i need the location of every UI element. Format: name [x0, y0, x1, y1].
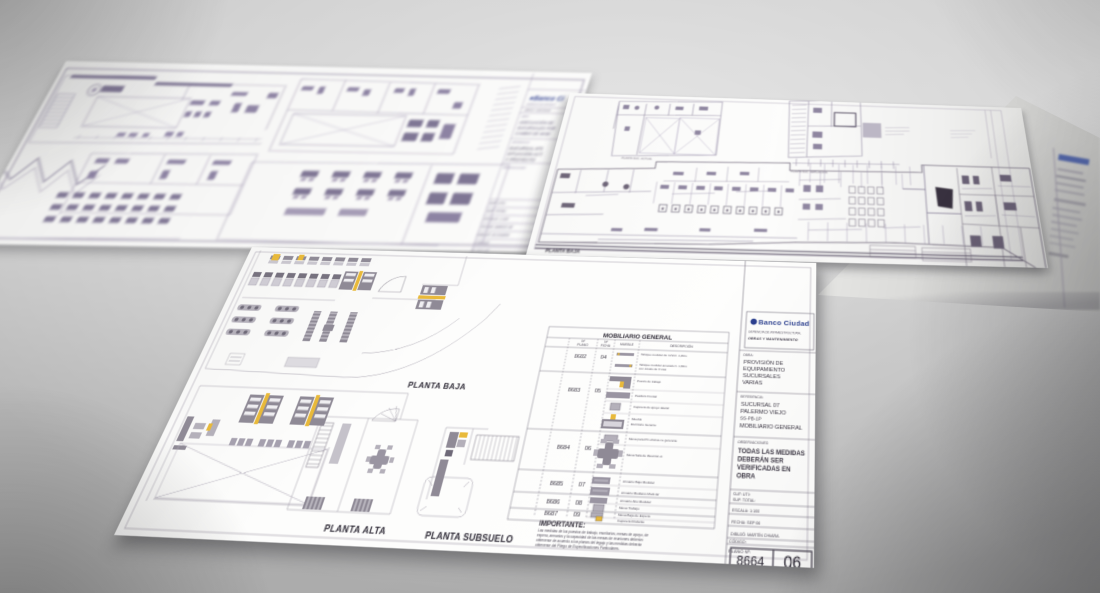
- svg-text:DIBUJÓ: M.CHIARA: DIBUJÓ: M.CHIARA: [476, 232, 511, 238]
- svg-text:SS-PB-1P: SS-PB-1P: [740, 416, 762, 422]
- svg-text:Tabique modular de m/alt h. 1,: Tabique modular de m/alt h. 1,80m: [641, 352, 688, 358]
- svg-text:SUCURSALES POR: SUCURSALES POR: [517, 125, 557, 130]
- svg-text:●Banco Ci: ●Banco Ci: [528, 94, 566, 103]
- svg-text:06: 06: [783, 554, 801, 568]
- svg-text:OBRA:: OBRA:: [743, 353, 754, 358]
- svg-text:8686: 8686: [546, 498, 561, 506]
- svg-text:8664: 8664: [736, 553, 764, 568]
- svg-text:Mesa Trabajo: Mesa Trabajo: [619, 505, 641, 512]
- svg-text:OBRA:: OBRA:: [521, 115, 531, 119]
- svg-text:04: 04: [600, 354, 607, 360]
- svg-text:PLANTA BAJA: PLANTA BAJA: [406, 382, 466, 392]
- svg-text:Armario Bajo Modular: Armario Bajo Modular: [622, 478, 655, 485]
- svg-text:GERENCIA DE INFRAESTRUCTURA,: GERENCIA DE INFRAESTRUCTURA,: [748, 329, 801, 335]
- svg-text:SUP. UTIL:: SUP. UTIL:: [488, 201, 507, 205]
- svg-text:8687: 8687: [544, 509, 559, 517]
- svg-text:OBSERVACIONES:: OBSERVACIONES:: [737, 439, 769, 445]
- svg-text:VARIAS: VARIAS: [742, 379, 762, 386]
- svg-text:PLANTA SUC. ACTUAL: PLANTA SUC. ACTUAL: [621, 156, 653, 161]
- svg-text:Mueble: Mueble: [631, 416, 643, 421]
- svg-text:DESCRIPCIÓN: DESCRIPCIÓN: [670, 343, 693, 349]
- svg-text:ESCALA: 1:100: ESCALA: 1:100: [483, 217, 509, 221]
- svg-text:PLANTA BAJA: PLANTA BAJA: [545, 248, 582, 254]
- svg-text:SUCURSAL Nº5: SUCURSAL Nº5: [508, 146, 544, 152]
- svg-text:PLANO Nº:: PLANO Nº:: [471, 249, 490, 252]
- svg-text:09: 09: [573, 511, 581, 518]
- svg-text:8683: 8683: [567, 387, 581, 393]
- svg-text:GERENCIA DE INFRAEST: GERENCIA DE INFRAEST: [526, 102, 557, 106]
- svg-text:Armario Mediano Modular: Armario Mediano Modular: [621, 490, 660, 497]
- svg-text:MOBILIARIO GENERAL: MOBILIARIO GENERAL: [739, 422, 803, 431]
- svg-text:MUEBLE: MUEBLE: [620, 342, 634, 347]
- svg-text:OBRA: OBRA: [736, 472, 756, 481]
- svg-text:05: 05: [594, 388, 602, 394]
- svg-text:OBRAS Y MANTENIM: OBRAS Y MANTENIM: [524, 108, 552, 112]
- svg-text:PALERMO VIEJO: PALERMO VIEJO: [740, 408, 786, 416]
- svg-text:PLANTA SUBSUELO: PLANTA SUBSUELO: [424, 531, 514, 545]
- svg-text:08: 08: [575, 499, 583, 506]
- svg-text:Banco Ciudad: Banco Ciudad: [758, 319, 809, 328]
- svg-text:ADECUACIÓN DE: ADECUACIÓN DE: [518, 120, 554, 125]
- svg-text:ESCALA: 1:100: ESCALA: 1:100: [732, 507, 760, 514]
- svg-text:Armario Alto Modular: Armario Alto Modular: [620, 498, 652, 505]
- svg-text:CAMBIO DE MOBI: CAMBIO DE MOBI: [515, 131, 552, 136]
- svg-text:OBRAS Y MANTENIMIENTO: OBRAS Y MANTENIMIENTO: [748, 336, 799, 342]
- svg-text:PLANTA ALTA: PLANTA ALTA: [322, 524, 387, 537]
- svg-text:SUP. TOTAL:: SUP. TOTAL:: [486, 209, 508, 213]
- svg-text:FECHA: SEP 06: FECHA: SEP 06: [731, 519, 761, 526]
- svg-text:Escritorio Gerente: Escritorio Gerente: [631, 422, 658, 428]
- svg-text:PLANTA SUC. AMPLIACIÓN: PLANTA SUC. AMPLIACIÓN: [791, 169, 828, 175]
- svg-text:FICHA: FICHA: [600, 343, 611, 348]
- svg-text:CÓDIGO:: CÓDIGO:: [729, 537, 747, 545]
- svg-text:Cajonera Rodante: Cajonera Rodante: [617, 518, 646, 525]
- svg-text:Puesto de trabajo: Puesto de trabajo: [637, 379, 662, 385]
- svg-text:07: 07: [578, 481, 586, 488]
- svg-text:Pasillo/s Frontal: Pasillo/s Frontal: [635, 393, 658, 399]
- svg-text:MOBILIARIO GENERAL: MOBILIARIO GENERAL: [602, 333, 673, 342]
- svg-text:FECHA: MARZO 06: FECHA: MARZO 06: [480, 225, 513, 230]
- svg-text:Cajonera de apoyo lateral: Cajonera de apoyo lateral: [633, 404, 670, 410]
- svg-text:REFERENCIA:: REFERENCIA:: [740, 394, 763, 400]
- svg-text:Mesa Baja de Espera: Mesa Baja de Espera: [618, 512, 651, 519]
- svg-text:8682: 8682: [574, 353, 588, 359]
- svg-text:REFERENCIA:: REFERENCIA:: [512, 140, 531, 144]
- svg-text:OBSERVACIONES:: OBSERVACIONES:: [502, 166, 527, 170]
- svg-text:8684: 8684: [556, 444, 571, 451]
- svg-text:CÓDIGO:: CÓDIGO:: [474, 240, 491, 245]
- svg-text:06: 06: [584, 445, 592, 452]
- svg-text:SUP. TOTAL:: SUP. TOTAL:: [733, 497, 756, 504]
- svg-text:8685: 8685: [549, 480, 564, 487]
- svg-text:Y PROYECTO: Y PROYECTO: [504, 157, 536, 163]
- svg-text:Mesa Sala de Reuniones: Mesa Sala de Reuniones: [626, 452, 663, 459]
- svg-text:PLANO: PLANO: [577, 342, 590, 347]
- svg-text:Mesa para PC oficina de gerenc: Mesa para PC oficina de gerencia: [629, 436, 678, 443]
